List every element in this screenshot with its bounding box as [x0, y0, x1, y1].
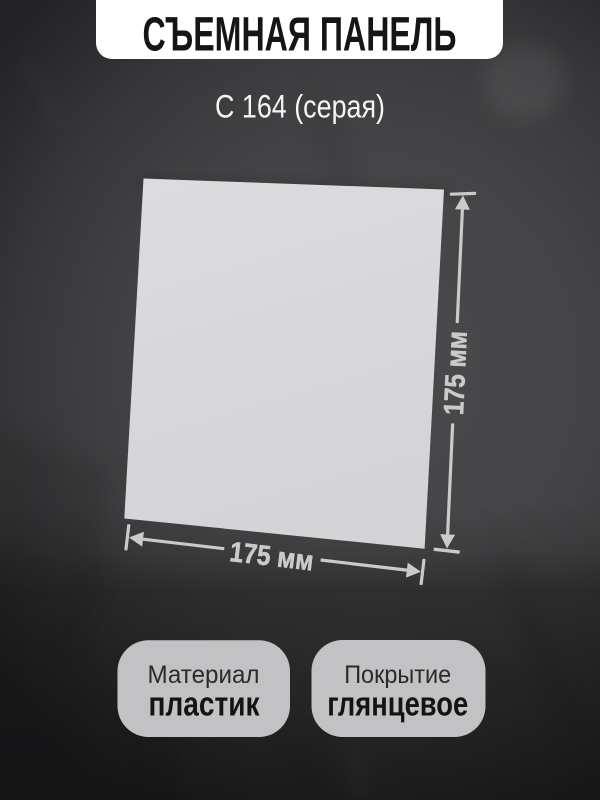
svg-text:С 164 (серая): С 164 (серая) — [215, 89, 385, 125]
svg-text:пластик: пластик — [149, 686, 261, 724]
svg-text:Покрытие: Покрытие — [344, 661, 451, 689]
svg-text:175 мм: 175 мм — [438, 330, 473, 415]
svg-text:Материал: Материал — [148, 661, 260, 689]
svg-text:175 мм: 175 мм — [228, 536, 315, 577]
svg-text:глянцевое: глянцевое — [327, 686, 468, 724]
svg-text:СЪЕМНАЯ ПАНЕЛЬ: СЪЕМНАЯ ПАНЕЛЬ — [143, 9, 457, 62]
